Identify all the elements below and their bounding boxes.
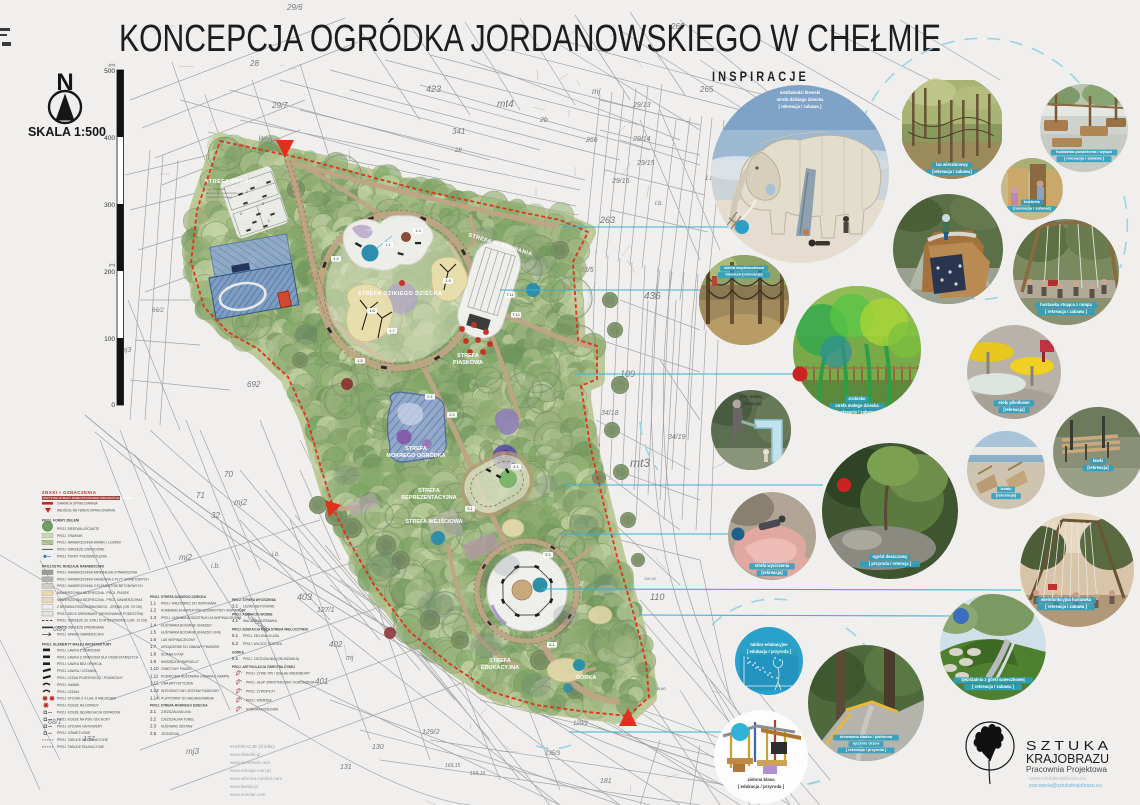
- svg-text:[rekreacja]: [rekreacja]: [1003, 407, 1025, 412]
- svg-text:PROJ. OŚWIETLENIE: PROJ. OŚWIETLENIE: [57, 730, 91, 735]
- svg-text:2.3: 2.3: [150, 724, 157, 729]
- svg-text:1.14: 1.14: [150, 695, 159, 700]
- svg-text:265: 265: [699, 85, 714, 94]
- svg-text:INSPIRACJE: INSPIRACJE: [712, 68, 809, 84]
- svg-text:1.3: 1.3: [415, 228, 421, 233]
- svg-text:www.wforma.comlon.com: www.wforma.comlon.com: [230, 776, 282, 781]
- svg-text:strefa małego dziecka: strefa małego dziecka: [835, 403, 879, 408]
- svg-text:500: 500: [104, 68, 115, 75]
- svg-text:(m): (m): [109, 62, 116, 67]
- svg-text:4.1: 4.1: [513, 464, 519, 469]
- svg-text:pracownia@sztukakrajobrazu.eu: pracownia@sztukakrajobrazu.eu: [1029, 783, 1102, 789]
- svg-text:WEJŚCIE NA TEREN OPRACOWANIA: WEJŚCIE NA TEREN OPRACOWANIA: [57, 507, 116, 512]
- svg-text:tablice edukacyjne: tablice edukacyjne: [750, 642, 788, 647]
- svg-text:PROJ. NAWIERZCHNIA Z ELEMENTÓW: PROJ. NAWIERZCHNIA Z ELEMENTÓW BETONOWYC…: [57, 583, 143, 588]
- svg-text:PIASKOWA: PIASKOWA: [453, 360, 483, 366]
- svg-text:Pracownia Projektowa: Pracownia Projektowa: [1026, 765, 1108, 774]
- svg-text:6.1: 6.1: [549, 642, 555, 647]
- svg-text:mt3: mt3: [630, 456, 650, 470]
- svg-text:PROJ. TABLICE INFORMACYJNE: PROJ. TABLICE INFORMACYJNE: [57, 738, 109, 742]
- svg-text:5.1: 5.1: [232, 633, 239, 638]
- svg-text:PROJ. ŁAWKA Z OPARCIEM DLA OSÓ: PROJ. ŁAWKA Z OPARCIEM DLA OSÓB STARSZYC…: [57, 654, 139, 659]
- svg-text:[ przyroda / retencja ]: [ przyroda / retencja ]: [869, 561, 912, 566]
- svg-text:PROJ. KOSZE NA ODPADY: PROJ. KOSZE NA ODPADY: [57, 704, 100, 708]
- svg-text:29/6: 29/6: [286, 3, 303, 12]
- svg-text:402: 402: [329, 640, 343, 649]
- svg-text:PROJ. ŁAWKA BEZ OPARCIA: PROJ. ŁAWKA BEZ OPARCIA: [57, 662, 103, 666]
- svg-text:GÓRKA: GÓRKA: [232, 649, 245, 654]
- svg-text:263: 263: [599, 215, 615, 225]
- svg-text:181: 181: [600, 778, 612, 785]
- svg-text:70: 70: [224, 470, 233, 479]
- svg-text:PROJ. ZYWE TIPI / SZAŁAS WIERZ: PROJ. ZYWE TIPI / SZAŁAS WIERZBOWY: [246, 672, 311, 676]
- svg-text:1.10: 1.10: [150, 666, 159, 671]
- svg-text:PROJ. OBRZEŻE ZE STALI KORTENO: PROJ. OBRZEŻE ZE STALI KORTENOWSKIEJ (GR…: [57, 618, 147, 623]
- svg-text:266: 266: [585, 137, 598, 144]
- svg-text:1.14: 1.14: [366, 228, 372, 232]
- svg-text:1.13: 1.13: [150, 688, 159, 693]
- svg-text:PROJ. TABLICE EDUKACYJNE: PROJ. TABLICE EDUKACYJNE: [57, 745, 105, 749]
- svg-text:29/14: 29/14: [632, 136, 651, 143]
- svg-text:100: 100: [104, 336, 115, 343]
- svg-text:stoły piknikowe: stoły piknikowe: [998, 400, 1030, 405]
- svg-text:[ rekreacja / zabawa ]: [ rekreacja / zabawa ]: [1064, 156, 1105, 161]
- svg-text:1.1: 1.1: [398, 258, 403, 262]
- svg-text:1.2: 1.2: [150, 608, 157, 613]
- svg-text:6.1: 6.1: [232, 656, 239, 661]
- svg-text:PROJ. STREFA MOKREGO DZIECKA: PROJ. STREFA MOKREGO DZIECKA: [150, 704, 208, 708]
- svg-text:GÓRKA: GÓRKA: [576, 673, 597, 681]
- svg-text:5.2: 5.2: [232, 641, 239, 646]
- svg-text:PROJ. STREFA DZIKIEGO DZIECKA: PROJ. STREFA DZIKIEGO DZIECKA: [150, 595, 207, 599]
- svg-text:[rekreacja]: [rekreacja]: [996, 493, 1017, 498]
- svg-text:www.emocje.com.pl: www.emocje.com.pl: [230, 768, 271, 773]
- svg-text:1: 1: [268, 219, 270, 223]
- svg-text:HUŚTAWKI ZESTAW: HUŚTAWKI ZESTAW: [161, 724, 193, 729]
- svg-text:MOKREGO OGRÓDKA: MOKREGO OGRÓDKA: [386, 451, 445, 459]
- svg-text:PROJ. NAWIERZCHNIA MINERALNA U: PROJ. NAWIERZCHNIA MINERALNA UTWARDZONA: [57, 570, 138, 574]
- svg-text:130: 130: [372, 744, 384, 751]
- svg-text:29/16: 29/16: [611, 178, 630, 185]
- svg-text:LINA ARTYSTYCZNA: LINA ARTYSTYCZNA: [161, 682, 194, 686]
- svg-text:zielona klasa: zielona klasa: [747, 777, 775, 782]
- svg-text:1.6: 1.6: [150, 637, 157, 642]
- svg-text:INSPIRACJE (źródła):: INSPIRACJE (źródła):: [230, 744, 275, 749]
- svg-text:PODWÓJNA HUŚTAWKA LINIARIA Z R: PODWÓJNA HUŚTAWKA LINIARIA Z RAMPĄ: [161, 673, 230, 678]
- svg-text:2.2: 2.2: [150, 716, 157, 721]
- svg-text:zjeżdżalnia z górki saneczkowe: zjeżdżalnia z górki saneczkowej: [961, 677, 1024, 682]
- svg-text:1.9: 1.9: [445, 278, 451, 283]
- svg-text:0: 0: [111, 402, 115, 409]
- svg-text:NAWIERZCHNIA BEZPIECZNA - PROJ: NAWIERZCHNIA BEZPIECZNA - PROJ. NAWIERZC…: [57, 598, 143, 602]
- svg-text:403: 403: [297, 592, 312, 602]
- svg-text:mj3: mj3: [186, 747, 199, 756]
- svg-text:[ edukacja / przyroda ]: [ edukacja / przyroda ]: [738, 784, 785, 789]
- svg-text:PROJ. ŻYWOPŁOT: PROJ. ŻYWOPŁOT: [246, 689, 275, 694]
- svg-text:ZJEŻDŻALNIA TUNEL: ZJEŻDŻALNIA TUNEL: [161, 716, 194, 721]
- svg-text:www.scenler.com: www.scenler.com: [230, 792, 266, 797]
- svg-text:STREFA DZIKIEGO DZIECKA: STREFA DZIKIEGO DZIECKA: [358, 291, 443, 297]
- svg-text:zrobisko: zrobisko: [848, 396, 866, 401]
- svg-text:linarium [rekreacja]: linarium [rekreacja]: [726, 272, 764, 277]
- svg-text:PROJ. STREFA WYCISZENIA: PROJ. STREFA WYCISZENIA: [232, 598, 277, 602]
- svg-text:1.1: 1.1: [150, 600, 157, 605]
- svg-text:l.b.: l.b.: [655, 201, 663, 207]
- svg-text:341: 341: [452, 127, 465, 136]
- svg-text:las wierzbinowy: las wierzbinowy: [936, 162, 969, 167]
- svg-text:i rekreacji ruchowej: i rekreacji ruchowej: [206, 195, 232, 199]
- svg-text:PROJ. LEŻAKI: PROJ. LEŻAKI: [57, 689, 79, 694]
- svg-text:KRAJOBRAZU: KRAJOBRAZU: [1026, 751, 1109, 766]
- svg-text:71: 71: [196, 491, 205, 500]
- svg-text:401: 401: [315, 677, 328, 686]
- svg-text:129/2: 129/2: [422, 729, 440, 736]
- svg-text:ŚCIANA O KĄT: ŚCIANA O KĄT: [161, 652, 184, 657]
- svg-text:STREFA: STREFA: [489, 658, 511, 664]
- svg-text:mj: mj: [592, 87, 601, 96]
- svg-text:Z DREWNA ROZDROBNIONEGO - ZRĘB: Z DREWNA ROZDROBNIONEGO - ZRĘBKI (GR. 20…: [57, 605, 142, 609]
- svg-text:34/19: 34/19: [668, 434, 686, 441]
- svg-text:ORBITOWY PIASEK: ORBITOWY PIASEK: [161, 667, 192, 671]
- svg-text:i.b.: i.b.: [211, 563, 220, 570]
- svg-text:28: 28: [249, 59, 259, 68]
- svg-text:PROJ. OBRZEŻE DREWNIANE: PROJ. OBRZEŻE DREWNIANE: [57, 625, 105, 630]
- svg-text:T.12: T.12: [512, 312, 520, 317]
- svg-text:169,16: 169,16: [470, 771, 486, 777]
- svg-text:PROJ. ZIELONA KLASA: PROJ. ZIELONA KLASA: [243, 634, 280, 638]
- svg-text:PROJ. WIEŻOWIEC DO WSPINANIA: PROJ. WIEŻOWIEC DO WSPINANIA: [161, 600, 217, 605]
- svg-text:leżaki: leżaki: [1001, 486, 1012, 491]
- svg-text:PROJ. JASKINIA BOGDZTRUKI JA W: PROJ. JASKINIA BOGDZTRUKI JA WSPINACZKOW…: [161, 616, 242, 620]
- svg-text:PROJ. EDUKACJA MAŁA STREFA WIE: PROJ. EDUKACJA MAŁA STREFA WIELOCZYNNO: [232, 627, 309, 631]
- svg-text:kuźbiela: kuźbiela: [1024, 199, 1041, 204]
- svg-text:PROJ. KOSZE NA PSIE ODCHODY: PROJ. KOSZE NA PSIE ODCHODY: [57, 717, 111, 721]
- svg-text:2.5: 2.5: [150, 731, 157, 736]
- svg-text:niedźwiedzi litewski: niedźwiedzi litewski: [780, 90, 821, 95]
- svg-text:NAWIERZCHNIA BEZPIECZNA - PROJ: NAWIERZCHNIA BEZPIECZNA - PROJ. PIASEK: [57, 591, 130, 595]
- svg-text:mj: mj: [346, 655, 354, 662]
- svg-text:EDUKACYJNA: EDUKACYJNA: [481, 665, 519, 671]
- svg-text:ogród deszczowy: ogród deszczowy: [873, 554, 909, 559]
- svg-text:200: 200: [104, 269, 115, 276]
- svg-text:łączenie drzew: łączenie drzew: [853, 741, 880, 745]
- svg-text:1.1: 1.1: [385, 242, 391, 247]
- svg-text:[rekreacja]: [rekreacja]: [761, 570, 783, 575]
- svg-text:1.7: 1.7: [150, 644, 157, 649]
- svg-text:28: 28: [454, 148, 462, 154]
- svg-text:mj2: mj2: [179, 553, 192, 562]
- svg-text:400: 400: [104, 135, 115, 142]
- svg-text:PROJ. WIERZBA: PROJ. WIERZBA: [246, 699, 272, 703]
- svg-text:PROJ. HAMAK: PROJ. HAMAK: [57, 683, 80, 687]
- svg-text:STREFA: STREFA: [405, 446, 427, 452]
- svg-text:INTEGRACYJNY ZESTAW PIASKOWY: INTEGRACYJNY ZESTAW PIASKOWY: [161, 689, 220, 693]
- svg-text:135/3: 135/3: [545, 751, 561, 757]
- svg-text:32: 32: [211, 511, 220, 520]
- svg-text:300: 300: [104, 202, 115, 209]
- svg-text:T.11: T.11: [506, 292, 514, 297]
- svg-text:1.7: 1.7: [389, 328, 395, 333]
- svg-text:2.1: 2.1: [150, 709, 157, 714]
- svg-text:[ rekreacja / zabawa ]: [ rekreacja / zabawa ]: [1045, 309, 1088, 314]
- svg-text:[rekreacja i zabawa]: [rekreacja i zabawa]: [1013, 206, 1051, 211]
- svg-text:wielofunkcyjna huśtawka: wielofunkcyjna huśtawka: [1040, 597, 1092, 602]
- svg-text:PROJ. NAWIERZCHNIA KAMIENNA Z: PROJ. NAWIERZCHNIA KAMIENNA Z PŁYT GRANI…: [57, 577, 149, 581]
- svg-text:PROJ. STOJAK Z 4 LUB. 8 MIEJSC: PROJ. STOJAK Z 4 LUB. 8 MIEJSCAMI: [57, 697, 116, 701]
- svg-text:66/2: 66/2: [152, 308, 164, 314]
- svg-text:PROJ. NAWIERZCHNIA WIANKI I ŁO: PROJ. NAWIERZCHNIA WIANKI I ŁOZINKI: [57, 541, 121, 545]
- svg-text:ZNAKI I OZNACZENIA: ZNAKI I OZNACZENIA: [42, 490, 97, 495]
- svg-text:2.2: 2.2: [449, 412, 455, 417]
- svg-text:LAS WSPINACZKOWY: LAS WSPINACZKOWY: [161, 638, 196, 642]
- svg-text:190,60: 190,60: [644, 576, 657, 581]
- svg-text:1.5: 1.5: [150, 630, 157, 635]
- svg-text:1.5: 1.5: [357, 358, 363, 363]
- svg-text:ławki: ławki: [1093, 458, 1103, 463]
- svg-text:5.1: 5.1: [545, 552, 551, 557]
- svg-text:URZĄDZENIE DO ZABAWY PIASKIEM: URZĄDZENIE DO ZABAWY PIASKIEM: [161, 645, 219, 649]
- svg-text:2.1: 2.1: [427, 394, 433, 399]
- svg-text:[rekreacja]: [rekreacja]: [1087, 465, 1109, 470]
- svg-text:3.1: 3.1: [467, 506, 473, 511]
- svg-text:129/2: 129/2: [573, 721, 589, 727]
- svg-text:HUŚTAWKA BOCIANIE GNIAZDO LINI: HUŚTAWKA BOCIANIE GNIAZDO LINIE: [161, 630, 222, 635]
- svg-text:1.9: 1.9: [150, 659, 157, 664]
- svg-text:plac wodny: plac wodny: [740, 394, 763, 399]
- svg-text:PROJ. OBRZEŻE OGRODOWE: PROJ. OBRZEŻE OGRODOWE: [57, 547, 105, 552]
- svg-text:www.lansip.pl: www.lansip.pl: [230, 784, 258, 789]
- svg-text:www.rikamki.pl: www.rikamki.pl: [230, 752, 260, 757]
- svg-text:34/18: 34/18: [601, 410, 619, 417]
- svg-text:PROJ. ATRAKCJE WODNE: PROJ. ATRAKCJE WODNE: [232, 613, 273, 617]
- svg-text:www.sztukakrajobrazu.eu: www.sztukakrajobrazu.eu: [1029, 776, 1086, 782]
- svg-text:[rekreacja / zabawa]: [rekreacja / zabawa]: [932, 169, 972, 174]
- svg-text:i.b.: i.b.: [272, 552, 280, 558]
- svg-text:PROJ. LEŻAK POJEDYNCZY / PODWÓ: PROJ. LEŻAK POJEDYNCZY / PODWÓJNY: [57, 675, 124, 680]
- svg-text:692: 692: [247, 380, 261, 389]
- svg-text:huśtawka powietrzna i wyspa: huśtawka powietrzna i wyspa: [1056, 149, 1113, 154]
- svg-text:mt4: mt4: [497, 99, 514, 110]
- svg-text:STREFA: STREFA: [457, 353, 479, 359]
- svg-text:29/15: 29/15: [636, 160, 655, 167]
- svg-text:strefa wyciszenia: strefa wyciszenia: [755, 563, 790, 568]
- svg-text:4: 4: [240, 212, 242, 216]
- svg-text:PROJ./ISTN. RODZAJE NAWIERZCHN: PROJ./ISTN. RODZAJE NAWIERZCHNI: [42, 565, 104, 569]
- svg-text:REPREZENTACYJNA: REPREZENTACYJNA: [401, 495, 457, 501]
- svg-text:huśtawka stojąca z rampa: huśtawka stojąca z rampa: [1040, 302, 1092, 307]
- svg-text:[rekreacja]: [rekreacja]: [740, 401, 762, 406]
- svg-text:JEŻDŻENIA: JEŻDŻENIA: [161, 731, 180, 736]
- svg-text:PROJ. DECK DREWNIANY (DESKOWAN: PROJ. DECK DREWNIANY (DESKOWANIE PODESTÓ…: [57, 611, 143, 616]
- svg-text:[ edukacja / przyroda ]: [ edukacja / przyroda ]: [747, 649, 792, 654]
- svg-text:3.1: 3.1: [232, 603, 239, 608]
- svg-text:29/13: 29/13: [632, 102, 651, 109]
- svg-text:3: 3: [262, 202, 264, 206]
- svg-text:PROJ. SPADKI NAWIERZCHNI: PROJ. SPADKI NAWIERZCHNI: [57, 633, 104, 637]
- svg-text:[ rekreacja / zabawa ]: [ rekreacja / zabawa ]: [779, 104, 823, 109]
- svg-text:SKALA 1:500: SKALA 1:500: [28, 125, 106, 139]
- svg-text:1.3: 1.3: [150, 615, 157, 620]
- svg-text:PROJ. ZJEŻDŻALNIA (ORUSZANKA): PROJ. ZJEŻDŻALNIA (ORUSZANKA): [243, 656, 299, 661]
- svg-text:423: 423: [426, 84, 441, 94]
- svg-text:ZJEŻDŻALNIA LINA: ZJEŻDŻALNIA LINA: [161, 709, 192, 714]
- svg-text:436: 436: [644, 291, 661, 302]
- svg-text:LEŻAKI BETONOWE: LEŻAKI BETONOWE: [243, 603, 275, 608]
- svg-text:127/1: 127/1: [317, 607, 335, 614]
- svg-text:strefa wspinaczkowa: strefa wspinaczkowa: [724, 265, 765, 270]
- svg-text:1.4: 1.4: [150, 622, 157, 627]
- svg-text:(m): (m): [109, 262, 116, 267]
- svg-text:1.11: 1.11: [150, 673, 159, 678]
- svg-text:PROJ. ARTYKULACJA ZWROTNA ŻYWE: PROJ. ARTYKULACJA ZWROTNA ŻYWEJ: [232, 665, 295, 669]
- svg-text:PROJ. ELEMENTY MAŁEJ ARCHITEKT: PROJ. ELEMENTY MAŁEJ ARCHITEKTURY: [42, 643, 112, 647]
- svg-text:mj2: mj2: [234, 498, 247, 507]
- svg-text:GRANICA OPRACOWANIA: GRANICA OPRACOWANIA: [57, 501, 99, 505]
- svg-text:1.8: 1.8: [150, 652, 157, 657]
- svg-text:PROJ. SŁUP ZWROTNICOWY OGRODZE: PROJ. SŁUP ZWROTNICOWY OGRODZENIA: [246, 681, 316, 685]
- svg-text:[ rekreacja / zabawa ]: [ rekreacja / zabawa ]: [972, 684, 1015, 689]
- svg-text:PROJ. KOSZE SEGREGACJA ODPADÓW: PROJ. KOSZE SEGREGACJA ODPADÓW: [57, 710, 121, 715]
- svg-text:HUŚTAWKA BOCIANIE GNIAZDO: HUŚTAWKA BOCIANIE GNIAZDO: [161, 622, 212, 627]
- svg-text:STREFA SPORTU: STREFA SPORTU: [205, 179, 257, 185]
- svg-text:PROJ. DRZEWA LIŚCIASTE: PROJ. DRZEWA LIŚCIASTE: [57, 526, 100, 531]
- svg-text:PROJ. WILGOĆ ŚCIEŻKA: PROJ. WILGOĆ ŚCIEŻKA: [243, 641, 283, 646]
- svg-text:NARZĘDZIA "RAPISELO": NARZĘDZIA "RAPISELO": [161, 660, 200, 664]
- svg-text:PROJ. ŁAWKA Z OPARCIEM: PROJ. ŁAWKA Z OPARCIEM: [57, 648, 100, 652]
- svg-text:STREFA WEJŚCIOWA: STREFA WEJŚCIOWA: [405, 518, 462, 525]
- svg-text:KONCEPCJA OGRÓDKA JORDANOWSKIE: KONCEPCJA OGRÓDKA JORDANOWSKIEGO W CHEŁM…: [119, 17, 941, 60]
- svg-text:PROJ. PUNKT PODŚWIETLENIA: PROJ. PUNKT PODŚWIETLENIA: [57, 554, 108, 559]
- svg-text:4.1: 4.1: [232, 618, 239, 623]
- svg-text:131: 131: [340, 764, 352, 771]
- svg-text:PROJ. ŁAWKA / LEŻANKA: PROJ. ŁAWKA / LEŻANKA: [57, 668, 97, 673]
- svg-text:strefa dzikiego dziecka: strefa dzikiego dziecka: [777, 97, 824, 102]
- svg-text:KOMORA ROŚLINNA: KOMORA ROŚLINNA: [246, 707, 279, 712]
- svg-text:[ rekreacja i przyroda ]: [ rekreacja i przyroda ]: [846, 748, 887, 752]
- svg-text:WACŁAW GUSTAWKA: WACŁAW GUSTAWKA: [243, 619, 278, 623]
- svg-text:29/7: 29/7: [271, 101, 288, 110]
- svg-text:1.12: 1.12: [150, 681, 159, 686]
- svg-text:1.2: 1.2: [333, 256, 339, 261]
- svg-text:110: 110: [650, 592, 664, 602]
- svg-text:drewniana kładka / platforma: drewniana kładka / platforma: [840, 735, 893, 739]
- svg-text:169,15: 169,15: [445, 763, 461, 769]
- svg-text:PROJ. STOJAKI NA ROWERY: PROJ. STOJAKI NA ROWERY: [57, 724, 103, 728]
- svg-text:www.lanserwis.com: www.lanserwis.com: [230, 760, 270, 765]
- svg-text:PROJ. TRAWNIK: PROJ. TRAWNIK: [57, 534, 83, 538]
- svg-text:2: 2: [246, 190, 248, 194]
- svg-text:[ rekreacja i zabawa ]: [ rekreacja i zabawa ]: [1045, 604, 1088, 609]
- svg-text:2b: 2b: [539, 117, 548, 124]
- svg-text:STREFA: STREFA: [418, 488, 440, 494]
- svg-text:1.6: 1.6: [369, 308, 375, 313]
- svg-text:PLATFORMY DO BALANSOWANIA: PLATFORMY DO BALANSOWANIA: [161, 696, 215, 700]
